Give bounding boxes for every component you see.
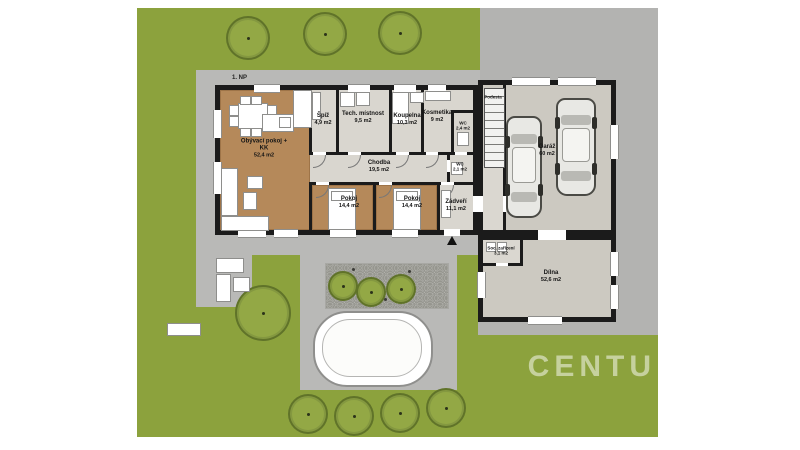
armchair [247,176,263,189]
wheel [538,184,543,196]
paved-strip-right [616,238,658,322]
wall [451,110,473,113]
sink [279,117,291,128]
wall [373,185,376,230]
room-label-wc-upper: WC 2,4 m2 [456,121,470,132]
car-roof [512,147,536,182]
room-label-bedroom2: Pokoj 14,4 m2 [402,196,422,210]
sofa [221,168,238,216]
entrance-door [444,229,460,236]
wall [336,90,339,152]
door-opening [538,230,566,240]
garage-door [512,77,550,86]
shrub-icon [328,271,358,301]
plant-dot [408,270,411,273]
garage-door [558,77,596,86]
tree-icon [288,394,328,434]
room-label-tech: Tech. místnost 9,5 m2 [342,111,384,125]
tree-icon [426,388,466,428]
room-label-workshop: Dílna 52,6 m2 [541,270,561,284]
tree-icon [378,11,422,55]
chair [251,96,262,105]
chair [240,96,251,105]
room-label-vestibule: Zádveří 11,1 m2 [445,199,466,213]
outdoor-table [233,277,250,292]
window [330,229,356,238]
toilet [457,132,469,146]
entrance-marker [447,236,457,245]
room-label-cosmetics: Kosmetika 9 m2 [422,110,452,124]
tree-icon [334,396,374,436]
floor-plan-canvas: CENTU [0,0,800,450]
sofa [221,216,269,231]
room-label-hall: Chodba 19,5 m2 [368,160,390,174]
window [477,272,486,298]
wall [309,185,312,230]
room-label-sanitary: Soc. zařízení 3,1 m2 [487,246,514,257]
boiler [340,92,355,107]
tree-icon [226,16,270,60]
chair [240,128,251,137]
outdoor-sofa [216,274,231,302]
tree-icon [235,285,291,341]
wheel [592,117,597,129]
wheel [505,136,510,148]
door-opening [473,196,483,212]
door-opening [447,160,450,172]
plant-dot [352,268,355,271]
wall [437,185,440,230]
chair [229,116,239,127]
window [610,285,619,309]
watermark: CENTU [528,350,656,384]
bench [167,323,201,336]
door-opening [455,152,467,155]
shrub-icon [356,277,386,307]
room-label-living: Obývací pokoj + KK 52,4 m2 [240,139,288,160]
window [392,229,418,238]
shrub-icon [386,274,416,304]
car [556,98,596,196]
wheel [592,163,597,175]
kitchen-counter [293,90,312,128]
tree-icon [303,12,347,56]
garage-corridor-floor [483,166,503,230]
chair [229,105,239,116]
door-opening [496,263,508,266]
car-roof [562,128,590,162]
washer [356,92,370,106]
wheel [505,184,510,196]
car-rear-window [511,192,537,202]
wheel [555,117,560,129]
car-windshield [511,134,537,144]
car-windshield [561,115,591,125]
room-label-pantry: Špíž 4,9 m2 [314,113,331,127]
window [610,125,619,159]
paved-strip-bottom [478,322,658,335]
floor-label: 1. NP [232,75,247,81]
tree-icon [380,393,420,433]
room-label-wc-lower: WC 2,1 m2 [453,162,467,173]
coffee-table [243,192,257,210]
room-label-garage: Garáž 60 m2 [539,144,556,158]
window [610,252,619,276]
wheel [555,163,560,175]
pool [313,311,433,387]
cosmetics-counter [425,91,451,101]
chair [251,128,262,137]
staircase [484,88,505,168]
room-label-bathroom: Koupelna 10,3 m2 [393,113,420,127]
room-label-landing: Podesta [484,94,502,99]
room-label-bedroom1: Pokoj 14,4 m2 [339,196,359,210]
car [506,116,542,218]
washbasin [410,92,424,103]
window [274,229,298,238]
car-rear-window [561,171,591,181]
window [213,110,222,138]
plant-dot [384,298,387,301]
pool-rim [322,319,422,377]
outdoor-sofa [216,258,244,273]
window [254,84,280,93]
window [528,316,562,325]
